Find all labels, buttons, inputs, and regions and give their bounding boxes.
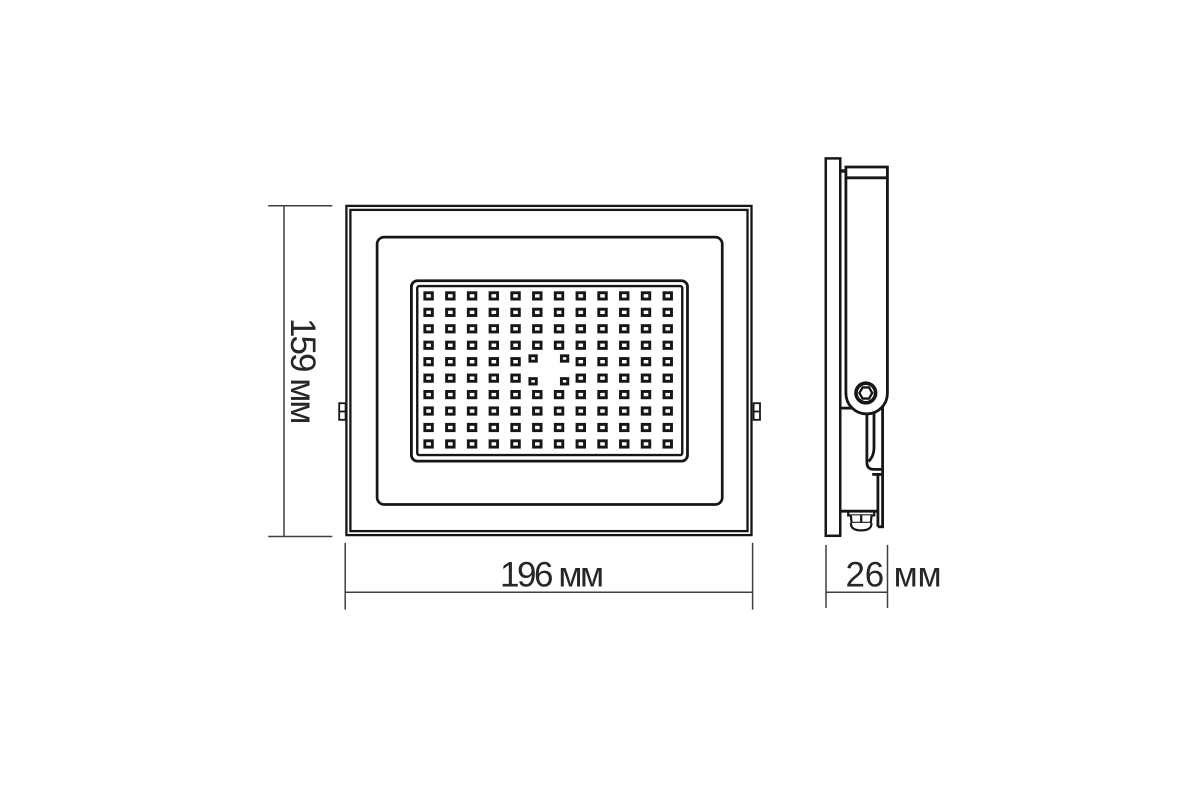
- svg-text:159 мм: 159 мм: [283, 318, 322, 425]
- svg-text:26 мм: 26 мм: [846, 555, 942, 594]
- svg-text:196 мм: 196 мм: [500, 555, 604, 594]
